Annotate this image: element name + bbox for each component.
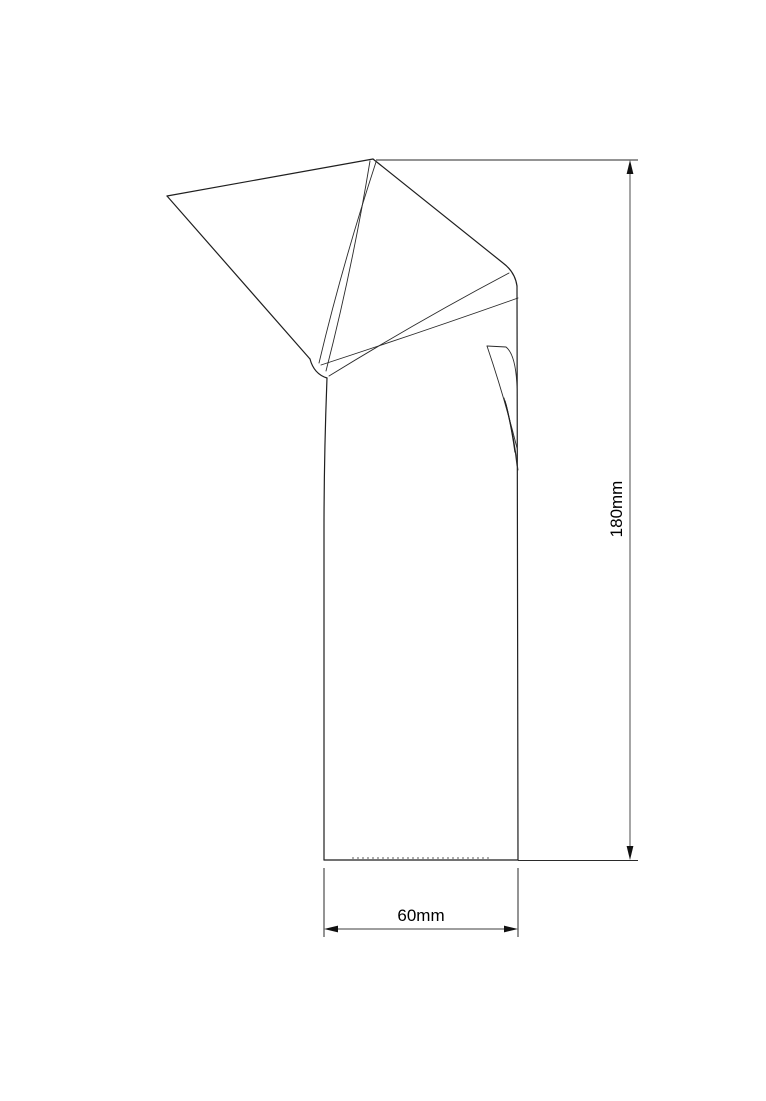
leaf-top-hook <box>487 346 517 388</box>
fold-sliver-line-1 <box>326 161 370 371</box>
fold-sliver-line-2 <box>319 162 376 363</box>
width-dimension-label: 60mm <box>397 906 444 925</box>
column-right-edge <box>517 286 518 860</box>
fold-line-1 <box>321 298 518 365</box>
fillet-arc <box>310 359 327 378</box>
leaf-detail <box>487 346 518 470</box>
height-arrow-up-icon <box>627 160 634 174</box>
edge-apex-to-right-corner <box>373 159 517 286</box>
width-dimension: 60mm <box>324 868 518 937</box>
object-column <box>324 286 518 860</box>
width-arrow-right-icon <box>504 926 518 933</box>
column-left-edge <box>324 378 327 860</box>
edge-left-to-center <box>167 196 310 359</box>
edge-left-to-apex <box>167 159 373 196</box>
height-dimension-label: 180mm <box>607 481 626 538</box>
object-top-folds <box>167 159 518 378</box>
technical-drawing-canvas: 180mm 60mm <box>0 0 766 1101</box>
drawing-page: 180mm 60mm <box>0 0 766 1101</box>
height-dimension: 180mm <box>376 160 638 861</box>
width-arrow-left-icon <box>324 926 338 933</box>
height-arrow-down-icon <box>627 846 634 860</box>
leaf-sliver-accent <box>505 401 515 452</box>
fold-line-2 <box>329 273 509 376</box>
